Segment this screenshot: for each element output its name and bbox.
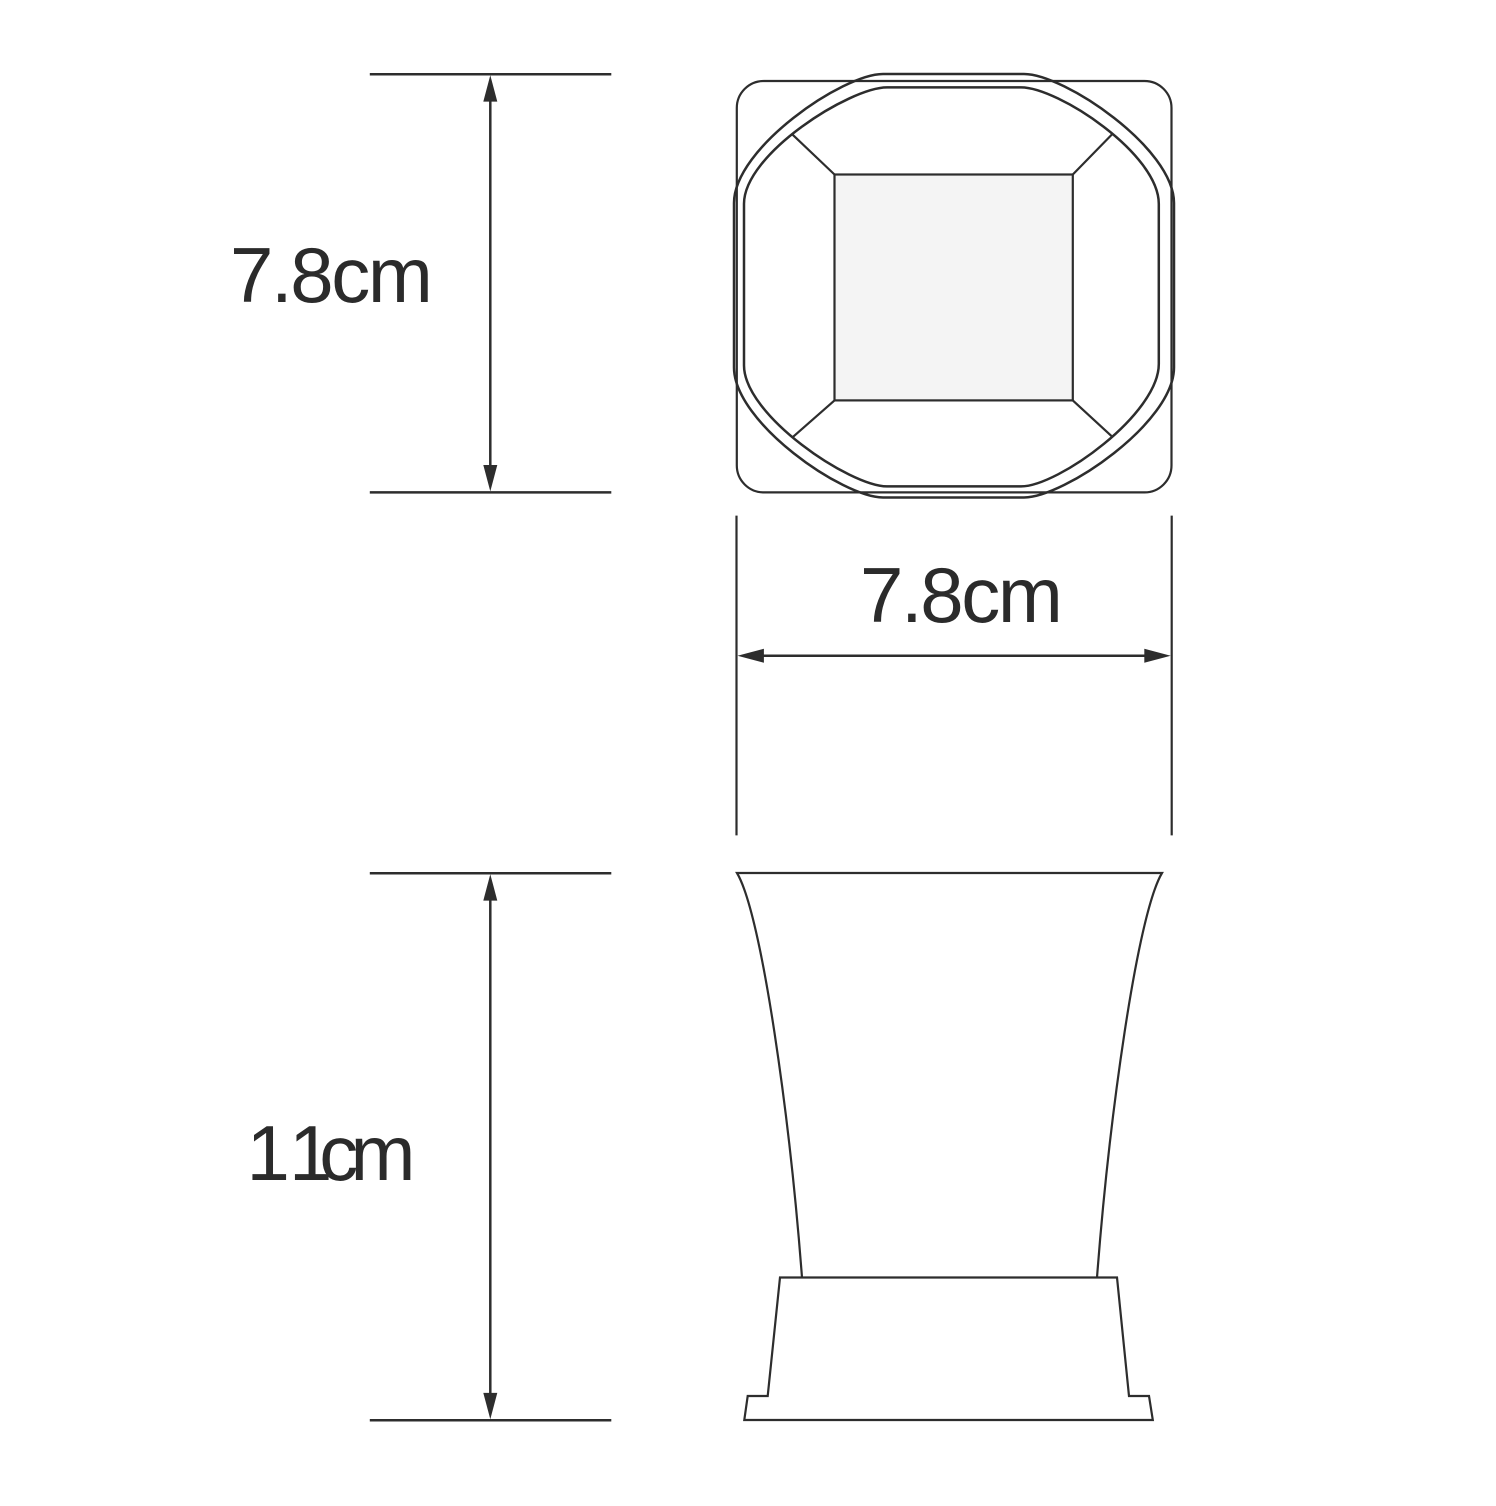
svg-text:11cm: 11cm bbox=[247, 1109, 416, 1197]
svg-text:7.8cm: 7.8cm bbox=[860, 551, 1060, 639]
svg-text:7.8cm: 7.8cm bbox=[230, 231, 430, 319]
